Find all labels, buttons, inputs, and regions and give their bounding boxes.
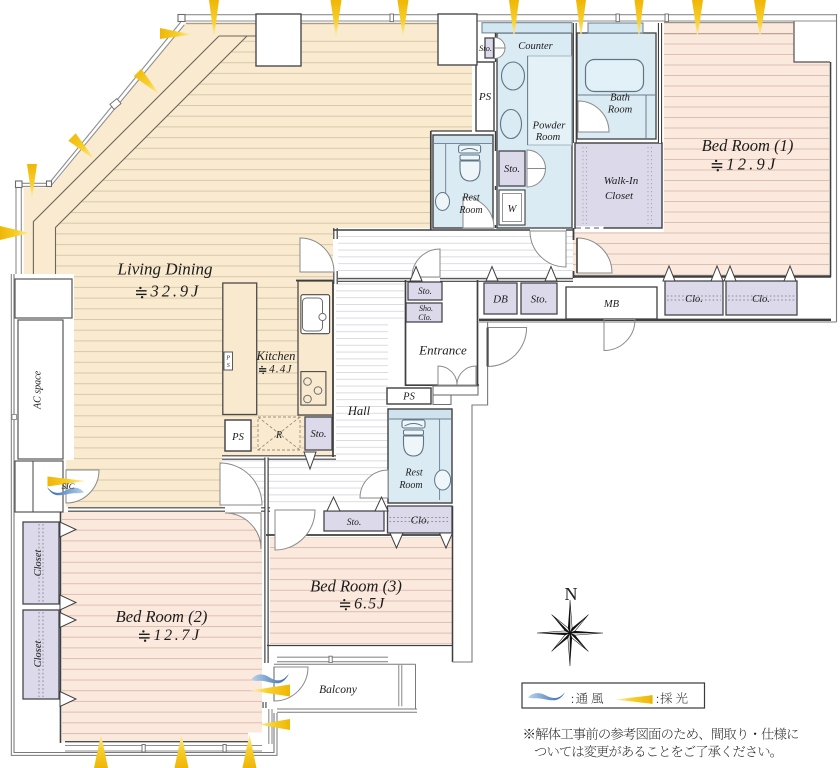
svg-text:Room: Room [535, 132, 561, 143]
svg-text:Balcony: Balcony [319, 684, 358, 696]
svg-text:Counter: Counter [518, 41, 553, 52]
svg-text:Clo.: Clo. [418, 313, 432, 322]
svg-text:PS: PS [231, 432, 244, 443]
svg-text:12.9J: 12.9J [726, 155, 778, 174]
svg-text:12.7J: 12.7J [154, 627, 202, 644]
svg-text:DB: DB [492, 293, 508, 305]
svg-text:Sto.: Sto. [531, 293, 548, 305]
svg-text:Hall: Hall [347, 404, 371, 418]
svg-text:MB: MB [603, 299, 620, 310]
svg-text:Room: Room [398, 480, 422, 491]
svg-text:Rest: Rest [404, 468, 422, 479]
svg-text:P: P [225, 356, 230, 362]
svg-text:Clo.: Clo. [411, 515, 430, 527]
svg-text:Sto.: Sto. [347, 518, 362, 528]
svg-text:Entrance: Entrance [418, 343, 467, 358]
svg-text:AC space: AC space [33, 370, 44, 410]
svg-text:Sto.: Sto. [504, 164, 520, 175]
svg-text:R: R [275, 430, 282, 441]
svg-text:Bath: Bath [610, 93, 630, 104]
svg-text:PS: PS [402, 392, 415, 403]
svg-text:Closet: Closet [33, 549, 44, 577]
svg-text:Closet: Closet [33, 640, 44, 668]
svg-text:Sto.: Sto. [310, 429, 326, 440]
svg-text:Powder: Powder [532, 121, 567, 132]
svg-text:Bed Room (2): Bed Room (2) [116, 607, 208, 626]
svg-text:Sto.: Sto. [418, 286, 432, 296]
svg-text:SIC: SIC [62, 481, 75, 491]
svg-text:PS: PS [478, 91, 492, 103]
svg-text:4.4J: 4.4J [269, 364, 292, 376]
svg-text:Kitchen: Kitchen [256, 349, 296, 363]
svg-text:Walk-In: Walk-In [604, 175, 639, 187]
svg-text:32.9J: 32.9J [150, 282, 202, 301]
svg-text:Bed Room (3): Bed Room (3) [310, 577, 402, 596]
svg-text:S: S [227, 363, 230, 369]
svg-text:N: N [565, 584, 578, 604]
svg-text:Room: Room [607, 105, 633, 116]
svg-text:Living Dining: Living Dining [117, 260, 213, 279]
svg-text:Closet: Closet [605, 190, 634, 202]
svg-text:Room: Room [458, 205, 482, 216]
svg-text:Bed Room (1): Bed Room (1) [702, 136, 794, 155]
svg-text:Clo.: Clo. [752, 294, 770, 305]
svg-text:Rest: Rest [461, 193, 479, 204]
svg-text:W: W [508, 204, 518, 215]
svg-text:6.5J: 6.5J [354, 596, 385, 613]
svg-text:Sho.: Sho. [419, 304, 433, 313]
svg-text:Sto.: Sto. [479, 43, 492, 53]
svg-text:Clo.: Clo. [685, 294, 703, 305]
